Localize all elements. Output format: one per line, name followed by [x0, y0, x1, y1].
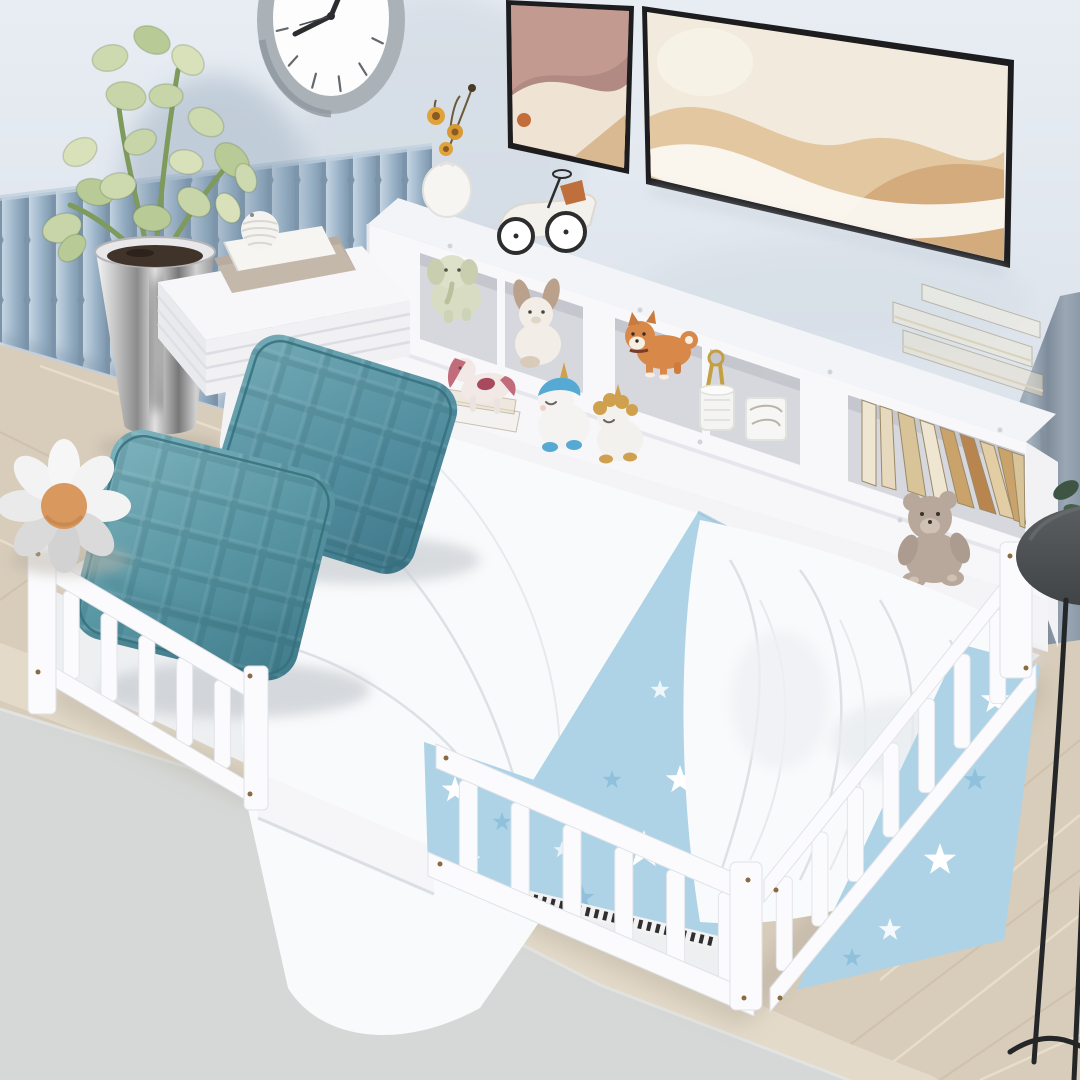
- pot-soil: [107, 245, 203, 267]
- white-gift-box: [746, 398, 786, 440]
- bedroom-photo: [0, 0, 1080, 1080]
- art-frame-small: [506, 0, 634, 174]
- daisy-plush: [0, 439, 131, 576]
- daisy-center: [41, 483, 87, 529]
- striped-sphere: [241, 211, 279, 249]
- white-jar: [700, 385, 734, 430]
